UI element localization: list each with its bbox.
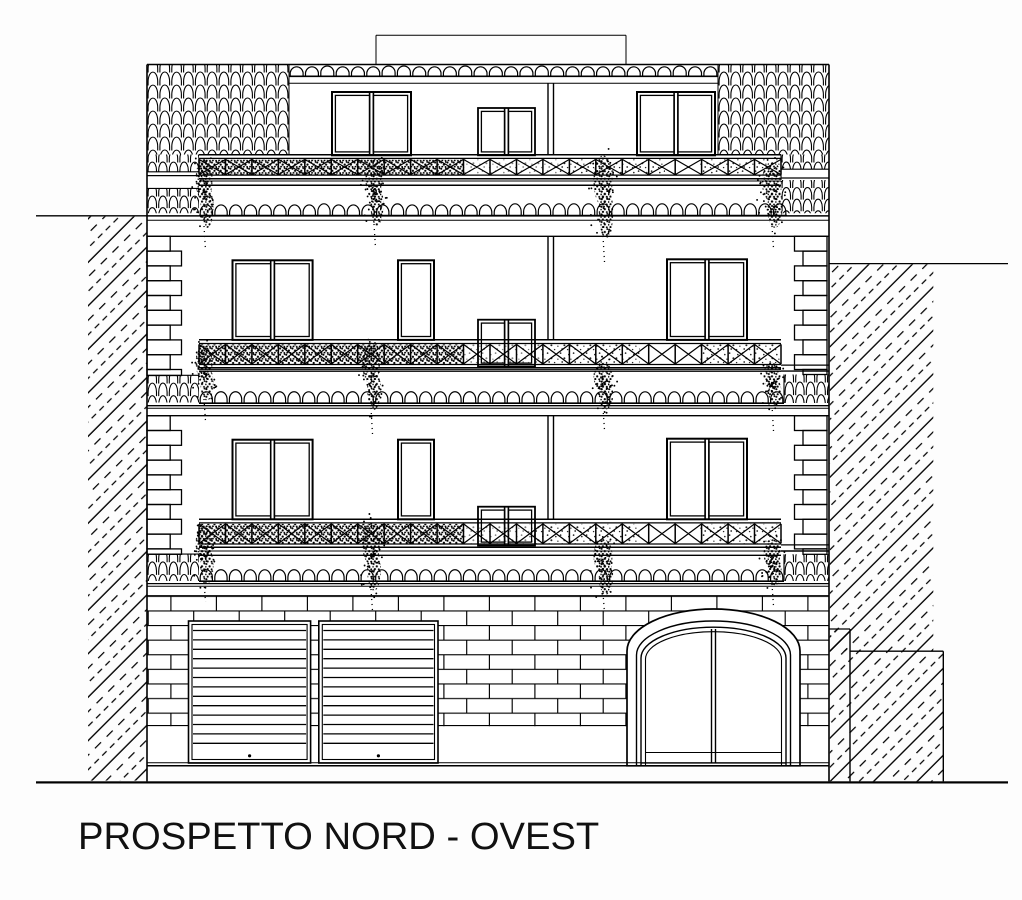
svg-text:PROSPETTO NORD - OVEST: PROSPETTO NORD - OVEST bbox=[78, 815, 599, 858]
